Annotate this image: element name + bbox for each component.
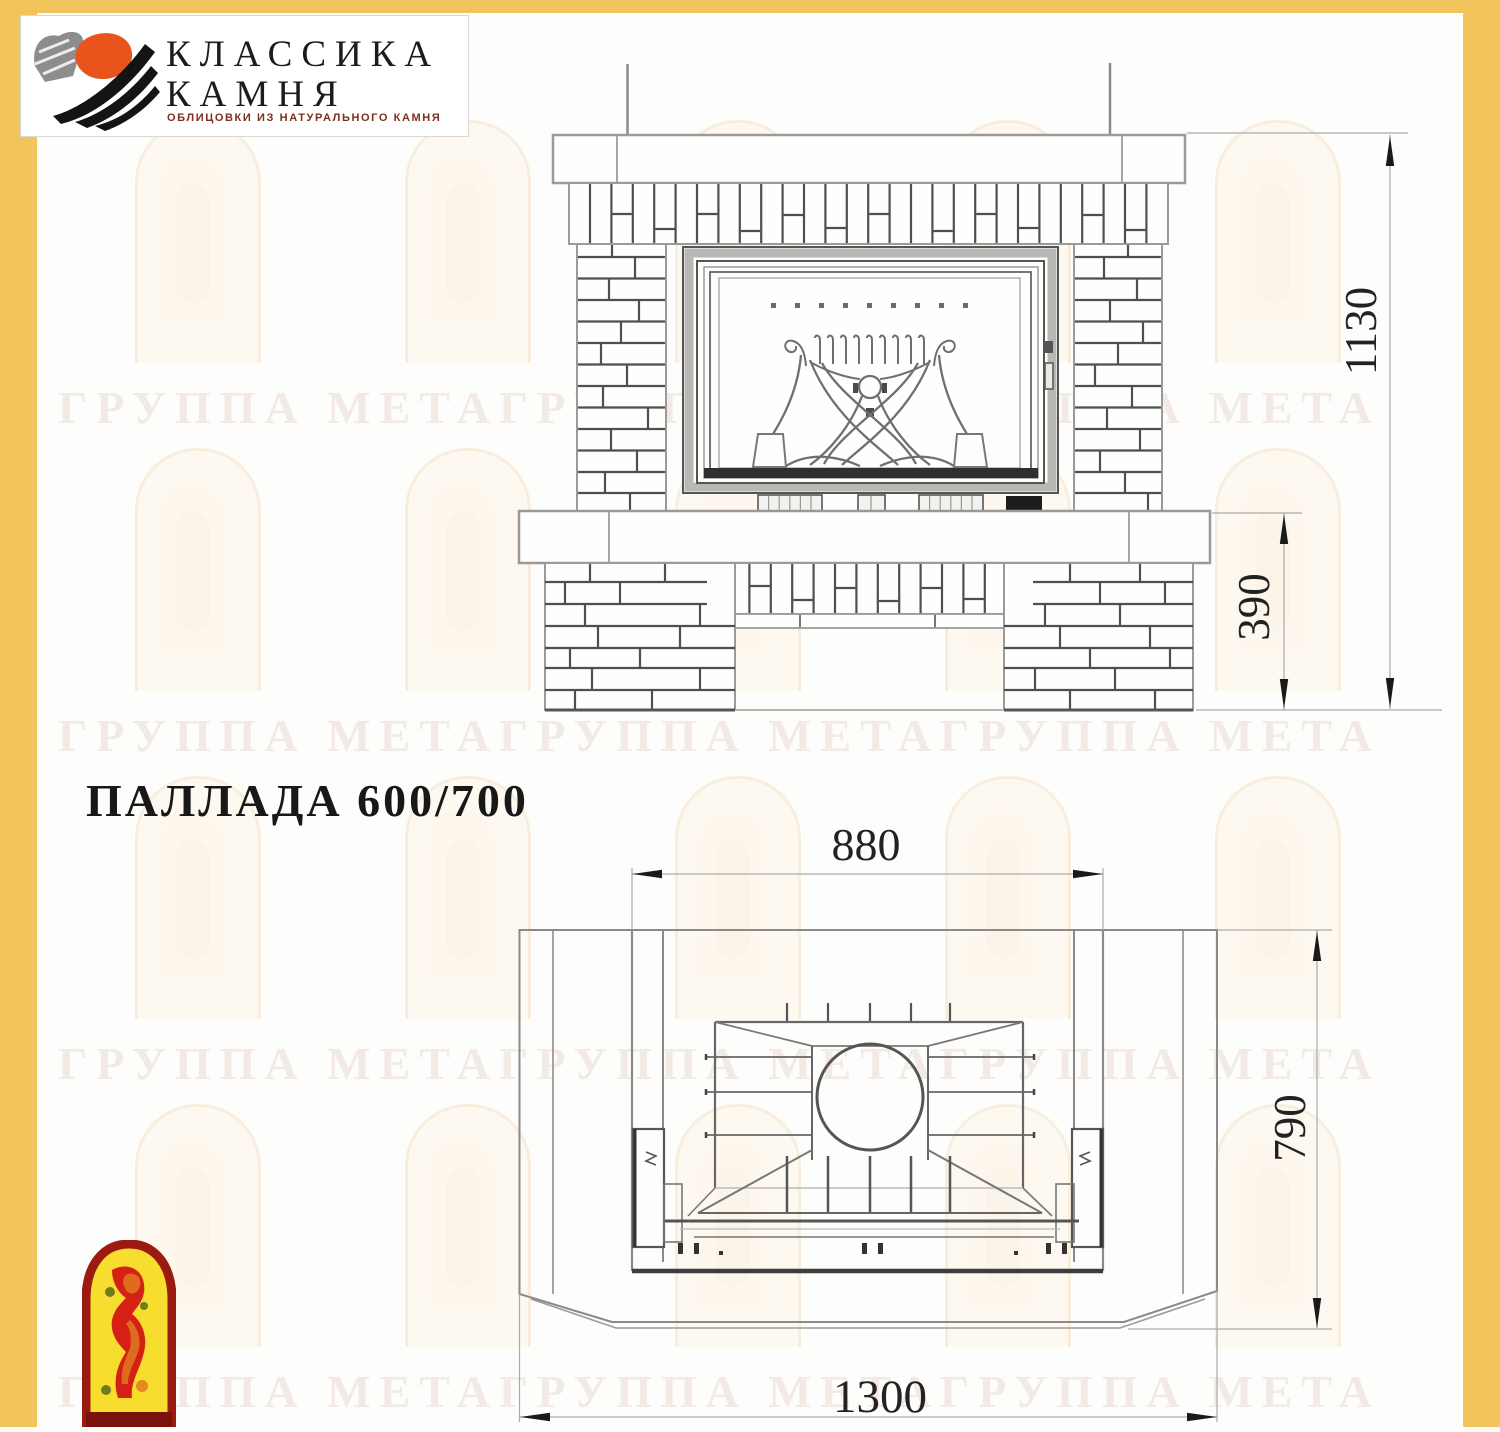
svg-text:880: 880 <box>832 819 901 870</box>
svg-text:1300: 1300 <box>833 1371 927 1423</box>
svg-text:1130: 1130 <box>1336 287 1386 375</box>
svg-text:790: 790 <box>1265 1094 1315 1162</box>
svg-text:390: 390 <box>1229 573 1279 641</box>
